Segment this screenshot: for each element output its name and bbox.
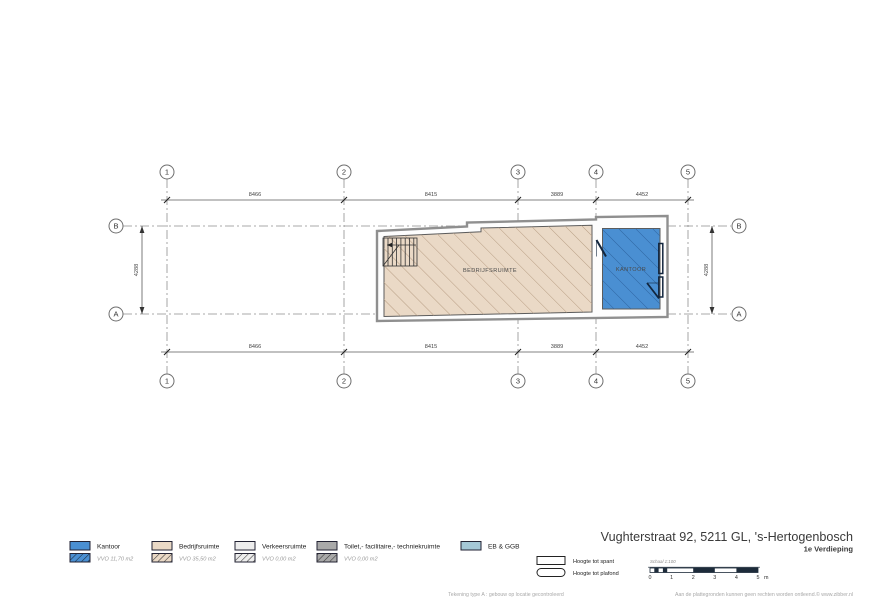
legend-vvo-verkeersruimte: VVO 0,00 m2 [262,557,296,563]
dim-bottom-4: 4452 [636,344,648,350]
grid-col-1-bottom: 1 [165,377,169,386]
scale-tick-4: 4 [735,575,738,581]
legend-height-spant: Hoogte tot spant [537,557,614,565]
scale-tick-3: 3 [713,575,716,581]
legend-label-hoogte-spant: Hoogte tot spant [573,559,614,565]
legend-height-plafond: Hoogte tot plafond [537,569,619,577]
grid-row-a-left: A [113,310,118,319]
grid-col-4-bottom: 4 [594,377,598,386]
scale-tick-5: 5 [757,575,760,581]
scale-tick-2: 2 [692,575,695,581]
legend: Kantoor VVO 11,70 m2 Bedrijfsruimte VVO … [70,542,619,577]
scale-bar: Schaal 1:100 0 1 2 3 4 5 m [648,559,769,581]
dim-right-vertical: 4288 [704,264,710,276]
grid-col-4-top: 4 [594,168,598,177]
grid-row-b-left: B [113,222,118,231]
dimension-line-right: 4288 [704,226,714,314]
room-kantoor: KANTOOR [603,229,661,310]
dim-top-2: 8415 [425,192,437,198]
legend-item-ebggb: EB & GGB [461,542,520,551]
legend-vvo-toilet: VVO 0,00 m2 [344,557,378,563]
grid-col-5-bottom: 5 [686,377,690,386]
dim-top-3: 3889 [551,192,563,198]
legend-label-verkeersruimte: Verkeersruimte [262,544,307,551]
scale-unit: m [764,575,769,581]
grid-row-a-right: A [736,310,741,319]
dim-bottom-3: 3889 [551,344,563,350]
dim-bottom-2: 8415 [425,344,437,350]
dimension-line-top: 8466 8415 3889 4452 [161,192,694,203]
grid-col-3-top: 3 [516,168,520,177]
page-title: Vughterstraat 92, 5211 GL, 's-Hertogenbo… [601,530,853,544]
room-label-kantoor: KANTOOR [616,267,646,273]
legend-label-ebggb: EB & GGB [488,544,520,551]
legend-item-bedrijfsruimte: Bedrijfsruimte VVO 35,50 m2 [152,542,220,563]
dim-left-vertical: 4288 [134,264,140,276]
page-subtitle: 1e Verdieping [804,545,854,554]
footer-note-center: Tekening type A : gebouw op locatie geco… [448,592,564,598]
legend-item-toilet: Toilet,- facilitaire,- techniekruimte VV… [317,542,440,563]
room-label-bedrijfsruimte: BEDRIJFSRUIMTE [463,268,517,274]
scale-tick-0: 0 [649,575,652,581]
dimension-line-bottom: 8466 8415 3889 4452 [161,344,694,355]
grid-row-b-right: B [736,222,741,231]
grid-col-2-bottom: 2 [342,377,346,386]
legend-label-toilet: Toilet,- facilitaire,- techniekruimte [344,544,440,551]
legend-item-kantoor: Kantoor VVO 11,70 m2 [70,542,134,563]
room-bedrijfsruimte: BEDRIJFSRUIMTE [384,225,592,316]
dimension-line-left: 4288 [134,226,144,314]
legend-vvo-bedrijfsruimte: VVO 35,50 m2 [179,557,217,563]
footer-notes: Tekening type A : gebouw op locatie geco… [448,591,853,598]
grid-col-3-bottom: 3 [516,377,520,386]
dim-top-4: 4452 [636,192,648,198]
grid-col-1-top: 1 [165,168,169,177]
dim-top-1: 8466 [249,192,261,198]
grid-col-5-top: 5 [686,168,690,177]
legend-item-verkeersruimte: Verkeersruimte VVO 0,00 m2 [235,542,307,563]
scale-label: Schaal 1:100 [650,559,676,564]
title-block: Vughterstraat 92, 5211 GL, 's-Hertogenbo… [601,530,854,554]
legend-label-kantoor: Kantoor [97,544,121,551]
legend-vvo-kantoor: VVO 11,70 m2 [97,557,134,563]
floorplan-page: 8466 8415 3889 4452 8466 8415 3889 4452 … [0,0,873,612]
dim-bottom-1: 8466 [249,344,261,350]
scale-tick-1: 1 [670,575,673,581]
floorplan-drawing: 8466 8415 3889 4452 8466 8415 3889 4452 … [0,0,873,612]
legend-label-hoogte-plafond: Hoogte tot plafond [573,571,619,577]
grid-col-2-top: 2 [342,168,346,177]
legend-label-bedrijfsruimte: Bedrijfsruimte [179,544,220,551]
footer-note-right: Aan de plattegronden kunnen geen rechten… [675,591,853,598]
